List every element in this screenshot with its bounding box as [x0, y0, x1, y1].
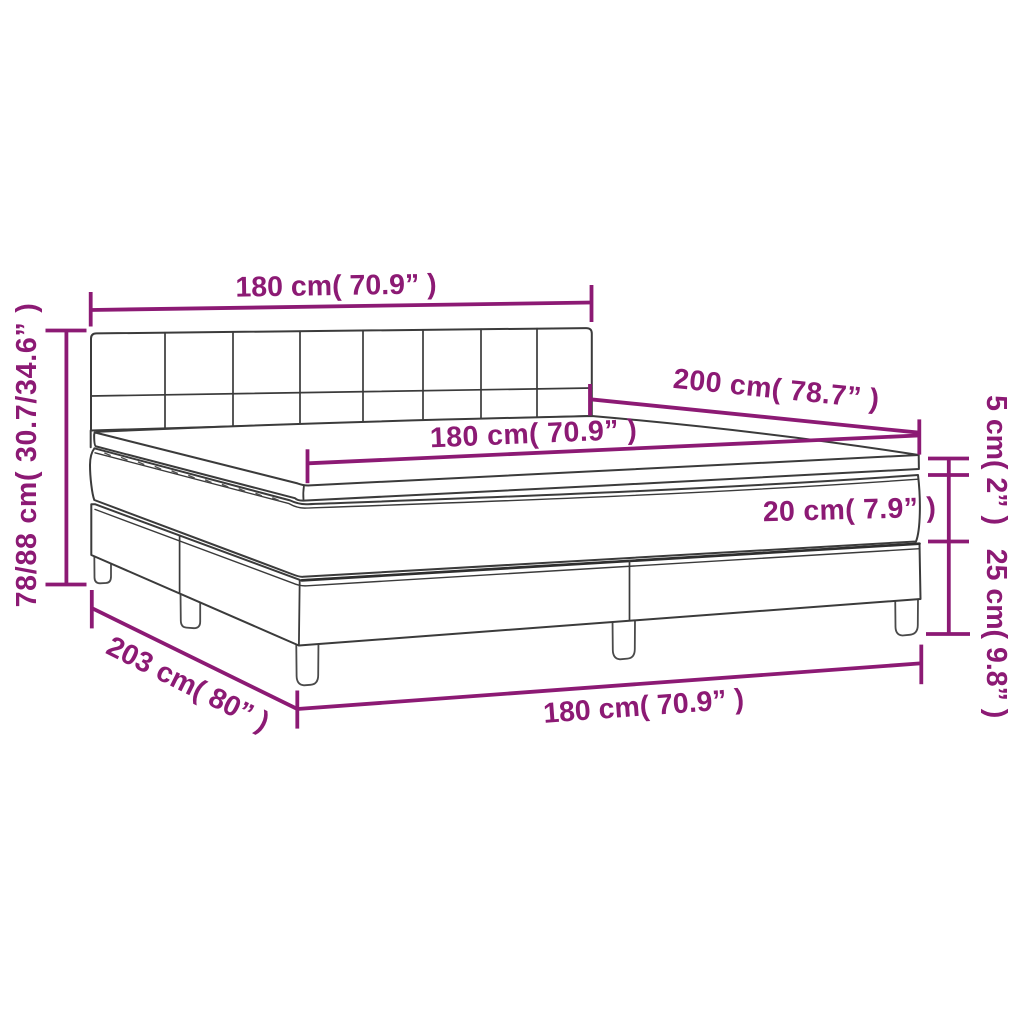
svg-text:5 cm( 2” ): 5 cm( 2” ) — [980, 395, 1012, 525]
svg-text:78/88 cm( 30.7/34.6” ): 78/88 cm( 30.7/34.6” ) — [11, 303, 43, 608]
svg-text:20 cm( 7.9” ): 20 cm( 7.9” ) — [762, 492, 936, 529]
svg-text:25 cm( 9.8” ): 25 cm( 9.8” ) — [980, 549, 1012, 719]
svg-text:180 cm( 70.9” ): 180 cm( 70.9” ) — [235, 268, 437, 303]
